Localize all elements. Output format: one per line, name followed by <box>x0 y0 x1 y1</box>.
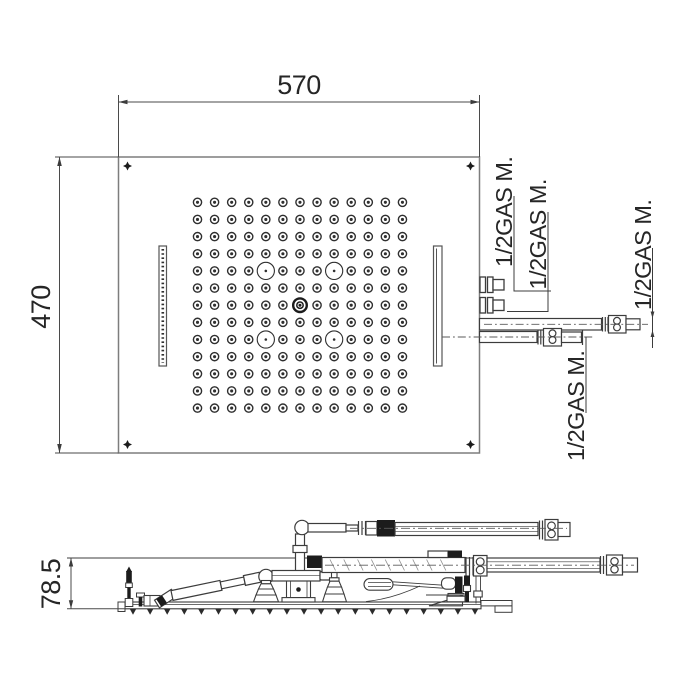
nozzle-small <box>316 218 319 221</box>
nozzle-small <box>230 338 233 341</box>
nozzle-small <box>316 287 319 290</box>
nozzle-small <box>384 389 387 392</box>
nozzle-small <box>264 321 267 324</box>
nozzle-small <box>401 407 404 410</box>
nozzle-small <box>316 407 319 410</box>
nozzle-small <box>401 252 404 255</box>
nozzle-small <box>350 407 353 410</box>
spray-tooth <box>284 609 291 615</box>
nozzle-small <box>230 235 233 238</box>
nozzle-small <box>230 407 233 410</box>
nozzle-small <box>401 355 404 358</box>
nozzle-small <box>333 389 336 392</box>
nozzle-small <box>281 269 284 272</box>
spray-tooth <box>352 609 359 615</box>
nozzle-small <box>281 389 284 392</box>
nozzle-small <box>264 304 267 307</box>
arrow-right-icon <box>471 100 480 105</box>
spray-tooth <box>318 609 325 615</box>
nozzle-small <box>281 355 284 358</box>
nozzle-small <box>350 304 353 307</box>
nozzle-small <box>316 201 319 204</box>
nozzle-small <box>264 287 267 290</box>
nozzle-small <box>333 287 336 290</box>
nozzle-small <box>367 321 370 324</box>
left-bellows-mount <box>254 581 279 602</box>
connection-label-4: 1/2GAS M. <box>563 351 589 461</box>
nozzle-small <box>367 389 370 392</box>
nozzle-small <box>247 235 250 238</box>
nozzle-small <box>350 201 353 204</box>
dim-label-470: 470 <box>26 285 56 329</box>
nozzle-small <box>367 218 370 221</box>
nozzle-large <box>333 338 336 341</box>
nozzle-small <box>401 389 404 392</box>
nozzle-small <box>213 355 216 358</box>
nozzle-small <box>367 235 370 238</box>
nozzle-small <box>281 252 284 255</box>
nozzle-small <box>316 304 319 307</box>
nozzle-small <box>367 338 370 341</box>
nozzle-small <box>247 201 250 204</box>
spray-tooth <box>369 609 376 615</box>
nozzle-small <box>298 372 301 375</box>
nozzle-small <box>316 321 319 324</box>
spray-tooth <box>386 609 393 615</box>
nozzle-small <box>298 287 301 290</box>
spray-tooth <box>249 609 256 615</box>
nozzle-small <box>213 407 216 410</box>
nozzle-small <box>333 304 336 307</box>
nozzle-small <box>213 389 216 392</box>
nozzle-small <box>367 252 370 255</box>
arrow-down-icon <box>57 444 62 453</box>
spray-plate <box>118 602 481 612</box>
right-spray-slot <box>434 246 443 366</box>
nozzle-small <box>401 235 404 238</box>
nozzle-small <box>230 218 233 221</box>
nozzle-small <box>333 218 336 221</box>
nozzle-small <box>213 287 216 290</box>
nozzle-small <box>213 252 216 255</box>
nozzle-small <box>230 201 233 204</box>
nozzle-small <box>401 321 404 324</box>
arrow-down-icon <box>69 600 73 609</box>
nozzle-small <box>401 218 404 221</box>
right-foot-bracket <box>481 601 512 613</box>
nozzle-small <box>350 287 353 290</box>
nozzle-small <box>230 355 233 358</box>
nozzle-small <box>281 235 284 238</box>
nozzle-small <box>247 218 250 221</box>
nozzle-small <box>333 252 336 255</box>
left-spray-slot <box>159 246 167 366</box>
nozzle-small <box>298 201 301 204</box>
spray-tooth <box>198 609 205 615</box>
nozzle-small <box>316 389 319 392</box>
nozzle-small <box>281 287 284 290</box>
nozzle-small <box>281 304 284 307</box>
connection-label-2: 1/2GAS M. <box>525 179 551 289</box>
nozzle-small <box>196 389 199 392</box>
nozzle-small <box>230 252 233 255</box>
nozzle-small <box>230 287 233 290</box>
nozzle-small <box>196 201 199 204</box>
dimension-panel-height <box>55 157 119 453</box>
nozzle-small <box>350 218 353 221</box>
linkage-assembly <box>364 576 482 606</box>
arrow-up-icon <box>651 330 655 337</box>
nozzle-small <box>384 304 387 307</box>
nozzle-small <box>316 252 319 255</box>
nozzle-small <box>264 252 267 255</box>
nozzle-small <box>230 321 233 324</box>
nozzle-small <box>384 287 387 290</box>
side-view: 78.5 <box>36 520 638 615</box>
spray-tooth <box>130 609 137 615</box>
nozzle-small <box>298 269 301 272</box>
nozzle-small <box>196 304 199 307</box>
nozzle-small <box>264 389 267 392</box>
left-pin <box>125 567 133 607</box>
nozzle-small <box>384 407 387 410</box>
nozzle-small <box>264 201 267 204</box>
nozzle-small <box>384 201 387 204</box>
dim-label-78-5: 78.5 <box>36 559 66 610</box>
nozzle-small <box>298 389 301 392</box>
nozzle-large <box>265 270 268 273</box>
nozzle-small <box>281 321 284 324</box>
spray-tooth <box>420 609 427 615</box>
top-view: 570 470 1/2GAS M. 1/2GAS M. 1/2GAS M. 1/… <box>26 70 656 461</box>
pill-handle <box>364 579 393 591</box>
spray-tooth <box>472 609 479 615</box>
nozzle-center <box>298 304 301 307</box>
nozzle-small <box>196 372 199 375</box>
nozzle-small <box>213 201 216 204</box>
nozzle-large <box>333 270 336 273</box>
connection-label-1: 1/2GAS M. <box>491 157 517 267</box>
arrow-left-icon <box>119 100 128 105</box>
nozzle-small <box>384 355 387 358</box>
nozzle-small <box>333 321 336 324</box>
spray-tooth <box>232 609 239 615</box>
nozzle-small <box>316 355 319 358</box>
nozzle-small <box>384 235 387 238</box>
nozzle-small <box>264 218 267 221</box>
nozzle-small <box>333 355 336 358</box>
nozzle-large <box>265 338 268 341</box>
nozzle-small <box>196 287 199 290</box>
spray-tooth <box>181 609 188 615</box>
nozzle-small <box>316 235 319 238</box>
connection-label-3: 1/2GAS M. <box>630 200 656 310</box>
dimension-top-width <box>119 95 480 157</box>
arrow-up-icon <box>69 558 73 567</box>
nozzle-small <box>350 389 353 392</box>
nozzle-small <box>247 389 250 392</box>
nozzle-small <box>298 407 301 410</box>
spray-tooth <box>455 609 462 615</box>
dim-label-570: 570 <box>277 70 321 100</box>
nozzle-small <box>401 201 404 204</box>
nozzle-small <box>247 252 250 255</box>
nozzle-small <box>367 304 370 307</box>
nozzle-small <box>264 355 267 358</box>
nozzle-small <box>316 338 319 341</box>
nozzle-small <box>230 372 233 375</box>
spray-nozzle-teeth <box>130 609 479 615</box>
nozzle-small <box>247 321 250 324</box>
nozzle-small <box>384 321 387 324</box>
technical-drawing: 570 470 1/2GAS M. 1/2GAS M. 1/2GAS M. 1/… <box>0 0 700 700</box>
nozzle-small <box>350 252 353 255</box>
nozzle-small <box>196 269 199 272</box>
nozzle-small <box>213 338 216 341</box>
nozzle-small <box>367 372 370 375</box>
nozzle-small <box>350 269 353 272</box>
nozzle-small <box>230 304 233 307</box>
nozzle-small <box>333 407 336 410</box>
arrow-down-icon <box>651 312 655 319</box>
inlet-stub-2 <box>480 298 504 314</box>
spray-tooth <box>403 609 410 615</box>
nozzle-small <box>367 355 370 358</box>
nozzle-small <box>213 304 216 307</box>
nozzle-small <box>247 269 250 272</box>
nozzle-small <box>350 355 353 358</box>
nozzle-small <box>247 355 250 358</box>
supply-arm <box>307 551 638 577</box>
arm-ferrule <box>307 556 322 569</box>
nozzle-small <box>367 287 370 290</box>
nozzle-small <box>281 218 284 221</box>
shower-head-technical-drawing-page: 570 470 1/2GAS M. 1/2GAS M. 1/2GAS M. 1/… <box>0 0 700 700</box>
nozzle-small <box>333 201 336 204</box>
nozzle-small <box>384 252 387 255</box>
nozzle-small <box>196 235 199 238</box>
nozzle-small <box>401 287 404 290</box>
nozzle-small <box>264 235 267 238</box>
nozzle-small <box>316 372 319 375</box>
spray-tooth <box>267 609 274 615</box>
nozzle-small <box>384 218 387 221</box>
nozzle-small <box>281 338 284 341</box>
nozzle-small <box>298 355 301 358</box>
spray-tooth <box>301 609 308 615</box>
nozzle-small <box>367 407 370 410</box>
nozzle-small <box>213 218 216 221</box>
elbow-joint <box>295 520 309 534</box>
dimension-side-height <box>67 558 125 609</box>
nozzle-small <box>367 269 370 272</box>
nozzle-small <box>213 269 216 272</box>
flex-hose-upper <box>395 523 538 536</box>
nozzle-small <box>196 355 199 358</box>
nozzle-small <box>247 287 250 290</box>
nozzle-small <box>298 252 301 255</box>
nozzle-small <box>281 201 284 204</box>
spray-tooth <box>147 609 154 615</box>
nozzle-small <box>281 372 284 375</box>
nozzle-small <box>401 338 404 341</box>
nozzle-small <box>401 372 404 375</box>
spray-tooth <box>164 609 171 615</box>
nozzle-small <box>316 269 319 272</box>
nozzle-small <box>230 269 233 272</box>
nozzle-small <box>384 338 387 341</box>
nozzle-small <box>350 321 353 324</box>
nozzle-small <box>247 304 250 307</box>
spray-tooth <box>215 609 222 615</box>
nozzle-small <box>350 338 353 341</box>
nozzle-small <box>213 372 216 375</box>
nozzle-small <box>384 372 387 375</box>
nozzle-small <box>298 321 301 324</box>
nozzle-small <box>247 372 250 375</box>
nozzle-small <box>213 235 216 238</box>
nozzle-small <box>281 407 284 410</box>
spray-tooth <box>335 609 342 615</box>
nozzle-small <box>298 218 301 221</box>
nozzle-small <box>196 407 199 410</box>
nozzle-small <box>367 201 370 204</box>
nozzle-small <box>298 235 301 238</box>
nozzle-small <box>213 321 216 324</box>
nozzle-small <box>247 407 250 410</box>
nozzle-small <box>333 372 336 375</box>
nozzle-small <box>350 372 353 375</box>
nozzle-small <box>196 321 199 324</box>
nozzle-small <box>401 269 404 272</box>
nozzle-small <box>264 407 267 410</box>
inlet-stub-1 <box>480 277 504 293</box>
nozzle-small <box>196 218 199 221</box>
spray-tooth <box>438 609 445 615</box>
arrow-up-icon <box>57 157 62 166</box>
nozzle-small <box>298 338 301 341</box>
nozzle-small <box>247 338 250 341</box>
nozzle-small <box>230 389 233 392</box>
nozzle-small <box>401 304 404 307</box>
nozzle-small <box>350 235 353 238</box>
nozzle-small <box>196 252 199 255</box>
nozzle-small <box>333 235 336 238</box>
nozzle-small <box>196 338 199 341</box>
nozzle-small <box>264 372 267 375</box>
nozzle-small <box>384 269 387 272</box>
